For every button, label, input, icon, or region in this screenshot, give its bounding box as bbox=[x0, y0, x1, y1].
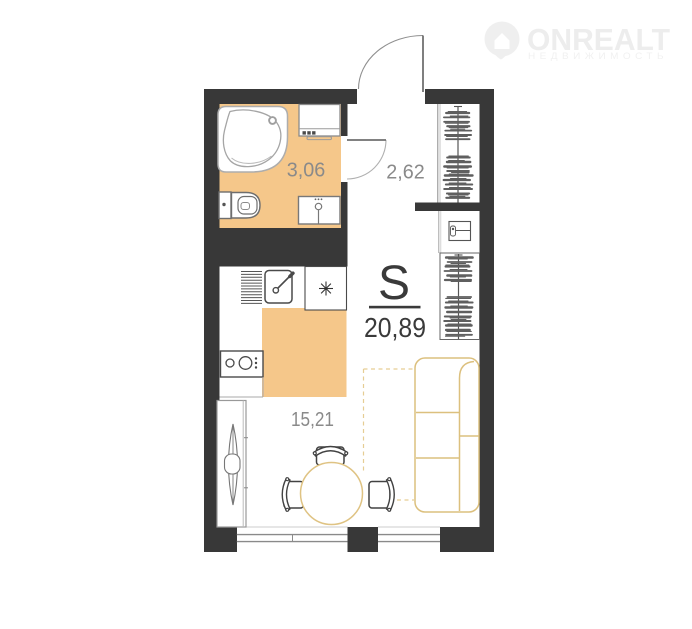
svg-text:3,06: 3,06 bbox=[287, 159, 326, 182]
svg-text:НЕДВИЖИМОСТЬ: НЕДВИЖИМОСТЬ bbox=[528, 51, 668, 61]
svg-text:20,89: 20,89 bbox=[364, 312, 426, 343]
svg-text:15,21: 15,21 bbox=[291, 408, 334, 431]
svg-text:S: S bbox=[378, 257, 410, 310]
svg-text:2,62: 2,62 bbox=[386, 161, 425, 184]
